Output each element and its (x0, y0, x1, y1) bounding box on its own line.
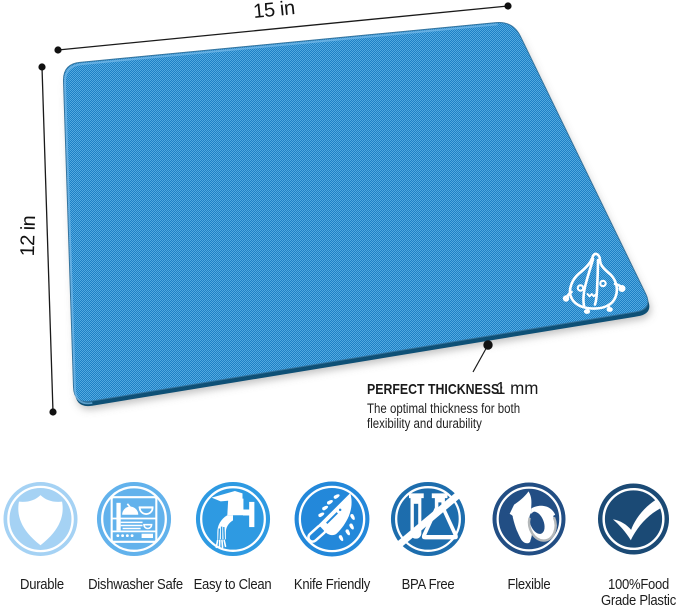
svg-text:15 in: 15 in (252, 0, 296, 23)
svg-text:12 in: 12 in (17, 215, 40, 257)
